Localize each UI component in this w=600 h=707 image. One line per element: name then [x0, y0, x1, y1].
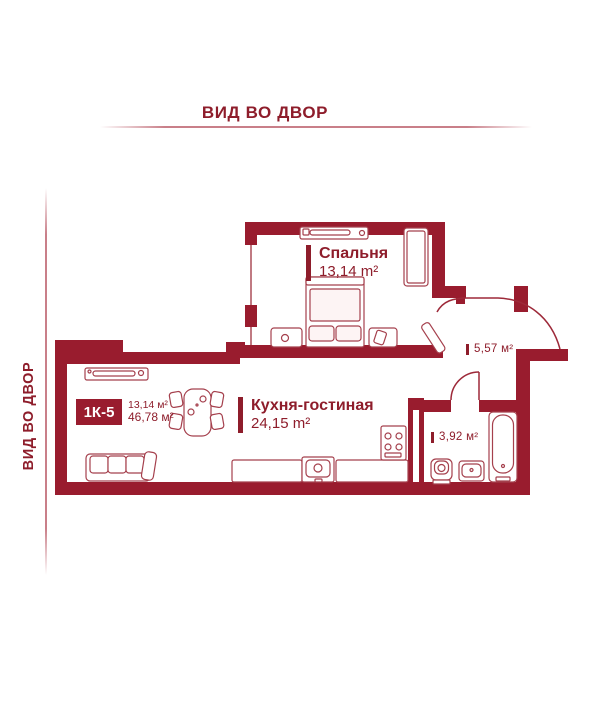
unit-info: 1К-5 13,14 м² 46,78 м²: [76, 399, 174, 425]
bedroom-dresser: [300, 227, 368, 239]
bathroom-door: [451, 372, 479, 400]
bedroom-area: 13,14 m²: [319, 263, 388, 282]
bedroom-wardrobe: [404, 228, 428, 286]
label-bar: [466, 344, 469, 355]
floorplan-page: ВИД ВО ДВОР ВИД ВО ДВОР: [0, 0, 600, 707]
hallway-label: 5,57 м²: [466, 342, 513, 356]
sofa: [86, 451, 157, 481]
nightstand-right: [369, 328, 397, 347]
hallway-area: 5,57 м²: [474, 342, 513, 356]
tv-stand: [85, 368, 148, 380]
stove: [381, 426, 406, 460]
kitchen-counter: [232, 457, 408, 482]
label-bar: [238, 397, 243, 433]
kitchen-area: 24,15 m²: [251, 415, 374, 434]
nightstand-left: [271, 328, 302, 347]
kitchen-label: Кухня-гостиная 24,15 m²: [238, 397, 374, 433]
bathroom-sink: [459, 461, 484, 481]
dining-table: [184, 389, 211, 436]
unit-areas: 13,14 м² 46,78 м²: [128, 399, 174, 425]
bathroom-area: 3,92 м²: [439, 430, 478, 444]
bathroom-label: 3,92 м²: [431, 430, 478, 444]
label-bar: [431, 432, 434, 443]
kitchen-name: Кухня-гостиная: [251, 397, 374, 415]
bedroom-label: Спальня 13,14 m²: [306, 245, 388, 281]
toilet: [431, 459, 452, 484]
unit-area-total: 46,78 м²: [128, 411, 174, 425]
bathtub: [489, 412, 517, 482]
unit-badge: 1К-5: [76, 399, 122, 425]
label-bar: [306, 245, 311, 281]
bedroom-name: Спальня: [319, 245, 388, 263]
double-bed: [306, 277, 364, 347]
